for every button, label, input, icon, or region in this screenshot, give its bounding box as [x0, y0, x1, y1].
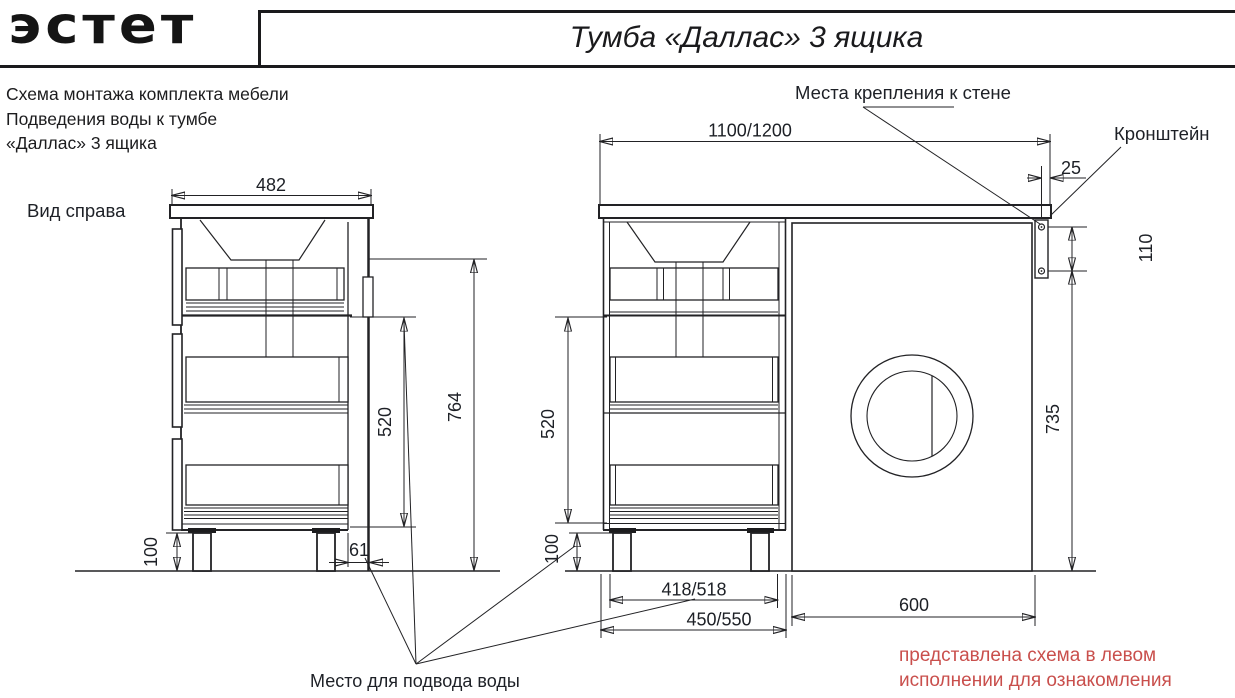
bracket-hole-dot: [1041, 226, 1043, 228]
dim-washer-niche: 600: [899, 595, 929, 615]
dim-side-width: 482: [256, 175, 286, 195]
side-view-drawing: 482 764 520 100 61 Вид справа: [27, 175, 500, 571]
dim-side-height: 764: [445, 392, 465, 422]
front-drawer2-box: [610, 357, 778, 402]
side-drawer1-box: [186, 268, 344, 300]
front-leg-left: [613, 533, 631, 571]
dim-cabinet-width: 450/550: [686, 610, 751, 630]
dim-bracket-height: 735: [1043, 404, 1063, 434]
side-drawer2-box: [186, 357, 348, 402]
front-leg-right: [751, 533, 769, 571]
wall-mount-label: Места крепления к стене: [795, 82, 1011, 103]
side-drawer-front-2: [173, 334, 183, 427]
dim-inner-width: 418/518: [661, 580, 726, 600]
dim-front-overhang: 25: [1061, 158, 1081, 178]
side-sink-funnel: [200, 220, 325, 260]
side-countertop: [170, 205, 373, 218]
front-countertop: [599, 205, 1051, 218]
front-drawer3-box: [610, 465, 778, 505]
water-supply-label: Место для подвода воды: [310, 671, 520, 691]
side-leg-left: [193, 533, 211, 571]
dim-side-drawer-zone: 520: [375, 407, 395, 437]
front-drawer1-frame: [610, 268, 778, 300]
washing-machine-body: [792, 223, 1032, 571]
side-drawer-front-3: [173, 439, 183, 530]
side-bracket: [363, 277, 373, 317]
bracket-label: Кронштейн: [1114, 123, 1210, 144]
front-view-drawing: 1100/1200 25 110 735 520 100 418/518: [538, 121, 1156, 639]
water-leader-3: [416, 546, 575, 664]
side-drawer3-box: [186, 465, 348, 505]
page: эстет Тумба «Даллас» 3 ящика Схема монта…: [0, 0, 1235, 698]
bracket-hole-dot: [1041, 270, 1043, 272]
water-leader-4: [416, 599, 695, 664]
front-sink-funnel: [627, 222, 750, 262]
assembly-drawing: 482 764 520 100 61 Вид справа: [0, 0, 1235, 698]
side-drawer-front-1: [173, 229, 183, 325]
side-leg-right: [317, 533, 335, 571]
dim-front-legs: 100: [542, 534, 562, 564]
dim-bracket-holes: 110: [1136, 234, 1156, 263]
water-leader-2: [404, 322, 416, 664]
dim-front-width: 1100/1200: [708, 121, 792, 141]
dim-front-drawer-zone: 520: [538, 409, 558, 439]
side-view-caption: Вид справа: [27, 200, 126, 221]
water-leader-1: [365, 558, 416, 664]
dim-side-wall-gap: 61: [349, 540, 369, 560]
dim-side-legs: 100: [141, 537, 161, 567]
